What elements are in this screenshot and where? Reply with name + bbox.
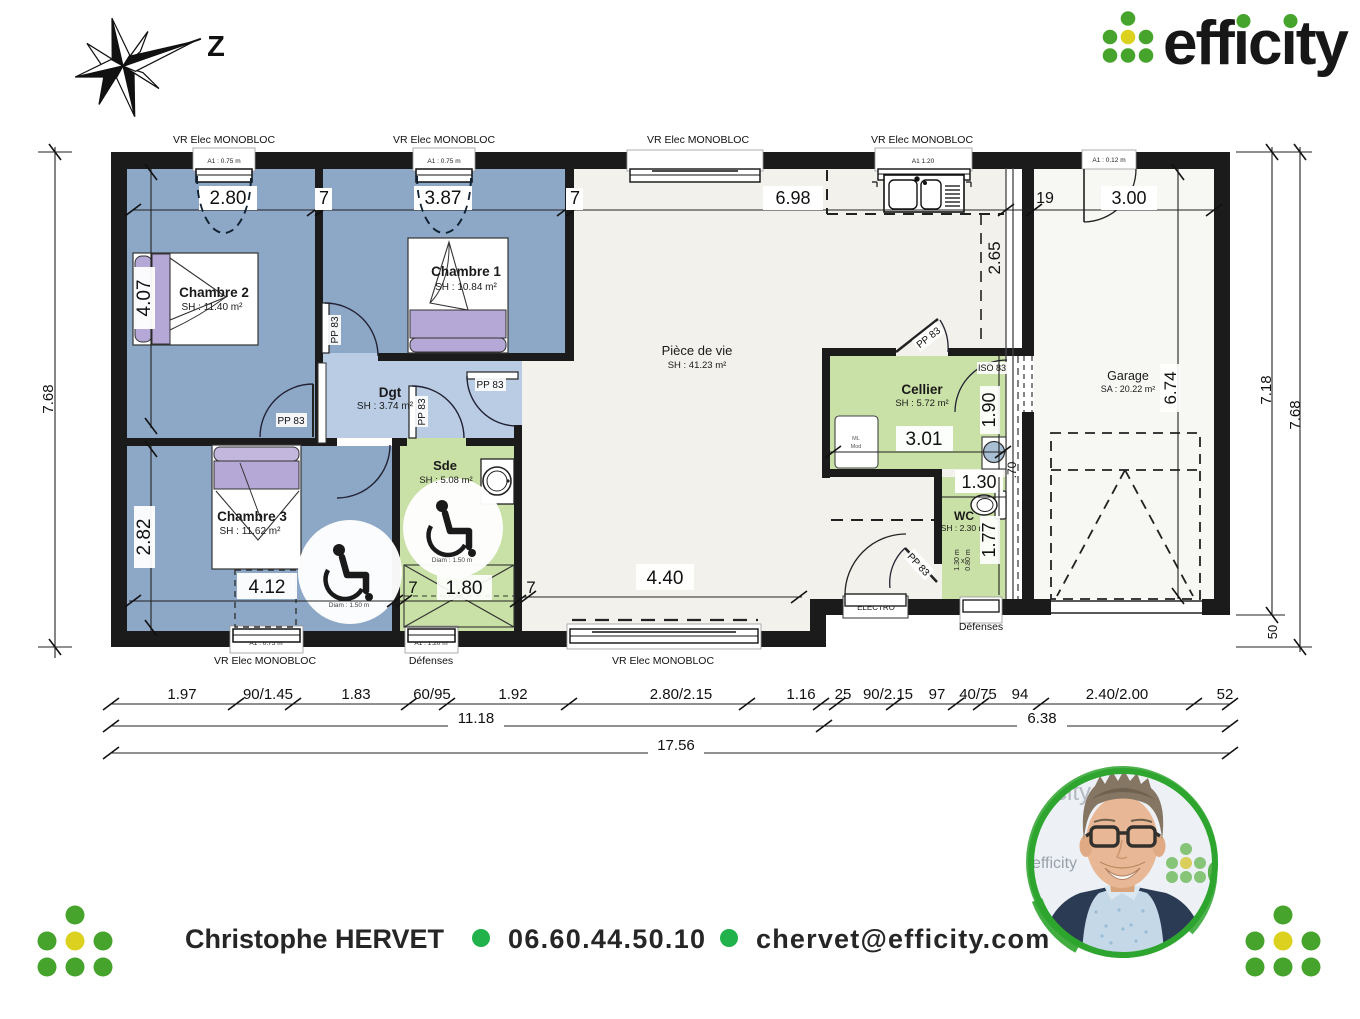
svg-text:7.18: 7.18 [1258, 375, 1275, 404]
svg-text:x: x [961, 558, 965, 565]
svg-text:Garage: Garage [1107, 369, 1149, 383]
svg-text:19: 19 [1036, 190, 1054, 207]
svg-text:3.87: 3.87 [425, 188, 462, 209]
svg-text:3.00: 3.00 [1111, 188, 1146, 208]
svg-text:06.60.44.50.10: 06.60.44.50.10 [508, 924, 706, 954]
svg-text:SH : 5.72 m²: SH : 5.72 m² [895, 398, 948, 409]
svg-text:VR Elec MONOBLOC: VR Elec MONOBLOC [647, 134, 750, 146]
svg-text:7.68: 7.68 [1287, 400, 1304, 429]
svg-text:SA : 20.22 m²: SA : 20.22 m² [1101, 384, 1156, 394]
svg-text:SH : 2.30 r: SH : 2.30 r [941, 523, 982, 533]
svg-text:Chambre 3: Chambre 3 [217, 509, 287, 524]
svg-text:Z: Z [207, 31, 225, 63]
svg-text:1.16: 1.16 [786, 686, 815, 703]
svg-text:52: 52 [1217, 686, 1234, 703]
svg-text:Pièce de vie: Pièce de vie [662, 343, 733, 358]
svg-text:1.77: 1.77 [979, 522, 999, 557]
svg-text:Dgt: Dgt [379, 385, 402, 400]
svg-text:Diam : 1.50 m: Diam : 1.50 m [329, 602, 369, 609]
svg-text:SH : 3.74 m²: SH : 3.74 m² [357, 401, 414, 412]
svg-text:VR Elec MONOBLOC: VR Elec MONOBLOC [871, 134, 974, 146]
svg-text:97: 97 [929, 686, 946, 703]
svg-text:A1 : 0.12 m: A1 : 0.12 m [1092, 157, 1125, 164]
svg-text:SH : 11.40 m²: SH : 11.40 m² [182, 302, 244, 313]
svg-text:2.65: 2.65 [985, 241, 1004, 274]
svg-text:1.90: 1.90 [979, 392, 999, 427]
svg-text:2.80/2.15: 2.80/2.15 [650, 686, 713, 703]
svg-text:VR Elec MONOBLOC: VR Elec MONOBLOC [173, 134, 276, 146]
svg-text:3.01: 3.01 [906, 429, 943, 450]
svg-text:A1 1.20: A1 1.20 [912, 158, 935, 165]
svg-text:2.40/2.00: 2.40/2.00 [1086, 686, 1149, 703]
svg-text:SH : 5.08 m²: SH : 5.08 m² [419, 475, 472, 486]
svg-text:90/1.45: 90/1.45 [243, 686, 293, 703]
svg-text:Défenses: Défenses [959, 621, 1003, 633]
svg-text:7.68: 7.68 [40, 384, 57, 413]
svg-text:Mod: Mod [851, 444, 862, 450]
svg-text:Cellier: Cellier [901, 382, 943, 397]
svg-text:25: 25 [835, 686, 852, 703]
svg-text:1.30 m: 1.30 m [954, 549, 961, 571]
svg-text:ISO 83: ISO 83 [978, 363, 1006, 373]
svg-text:VR Elec MONOBLOC: VR Elec MONOBLOC [393, 134, 496, 146]
svg-text:1.30: 1.30 [961, 472, 996, 492]
svg-text:17.56: 17.56 [657, 737, 695, 754]
svg-text:effıcıty: effıcıty [1163, 9, 1349, 78]
svg-text:7: 7 [319, 188, 329, 208]
svg-text:PP 83: PP 83 [476, 380, 503, 391]
svg-text:1.92: 1.92 [498, 686, 527, 703]
svg-text:WC: WC [954, 509, 974, 523]
svg-text:VR Elec MONOBLOC: VR Elec MONOBLOC [214, 655, 317, 667]
svg-text:SH : 10.84 m²: SH : 10.84 m² [435, 282, 497, 293]
svg-text:Sde: Sde [433, 458, 457, 473]
svg-text:ML: ML [852, 436, 860, 442]
svg-text:1.97: 1.97 [167, 686, 196, 703]
svg-text:Défenses: Défenses [409, 655, 453, 667]
svg-text:Christophe HERVET: Christophe HERVET [185, 924, 445, 954]
svg-text:6.38: 6.38 [1027, 710, 1056, 727]
svg-text:50: 50 [1265, 625, 1280, 639]
svg-text:2.80: 2.80 [210, 188, 247, 209]
svg-text:Chambre 2: Chambre 2 [179, 285, 249, 300]
svg-text:PP 83: PP 83 [277, 416, 304, 427]
svg-text:7: 7 [408, 578, 417, 597]
svg-text:4.40: 4.40 [647, 568, 684, 589]
svg-text:Chambre 1: Chambre 1 [431, 264, 501, 279]
svg-text:A1 : 0.75 m: A1 : 0.75 m [207, 158, 240, 165]
svg-text:PP 83: PP 83 [417, 398, 428, 425]
svg-text:7: 7 [570, 188, 580, 208]
svg-text:PP 83: PP 83 [330, 316, 341, 343]
svg-text:40/75: 40/75 [959, 686, 997, 703]
svg-text:2.82: 2.82 [134, 519, 155, 556]
svg-text:SH : 11.62 m²: SH : 11.62 m² [220, 526, 282, 537]
svg-text:4.12: 4.12 [249, 577, 286, 598]
svg-text:A1 : 0.75 m: A1 : 0.75 m [427, 158, 460, 165]
svg-text:60/95: 60/95 [413, 686, 451, 703]
svg-text:90/2.15: 90/2.15 [863, 686, 913, 703]
svg-text:efficity: efficity [1032, 855, 1077, 872]
svg-text:11.18: 11.18 [458, 710, 494, 727]
svg-text:SH : 41.23 m²: SH : 41.23 m² [668, 360, 727, 371]
svg-text:6.74: 6.74 [1161, 371, 1180, 404]
svg-text:.70: .70 [1005, 461, 1019, 478]
svg-text:VR Elec MONOBLOC: VR Elec MONOBLOC [612, 655, 715, 667]
svg-text:0.80 m: 0.80 m [965, 549, 972, 571]
svg-text:94: 94 [1012, 686, 1029, 703]
svg-text:chervet@efficity.com: chervet@efficity.com [756, 924, 1050, 954]
svg-text:Diam : 1.50 m: Diam : 1.50 m [432, 557, 472, 564]
svg-text:6.98: 6.98 [775, 188, 810, 208]
svg-text:1.83: 1.83 [341, 686, 370, 703]
svg-text:1.80: 1.80 [446, 578, 483, 599]
svg-text:4.07: 4.07 [134, 280, 155, 317]
